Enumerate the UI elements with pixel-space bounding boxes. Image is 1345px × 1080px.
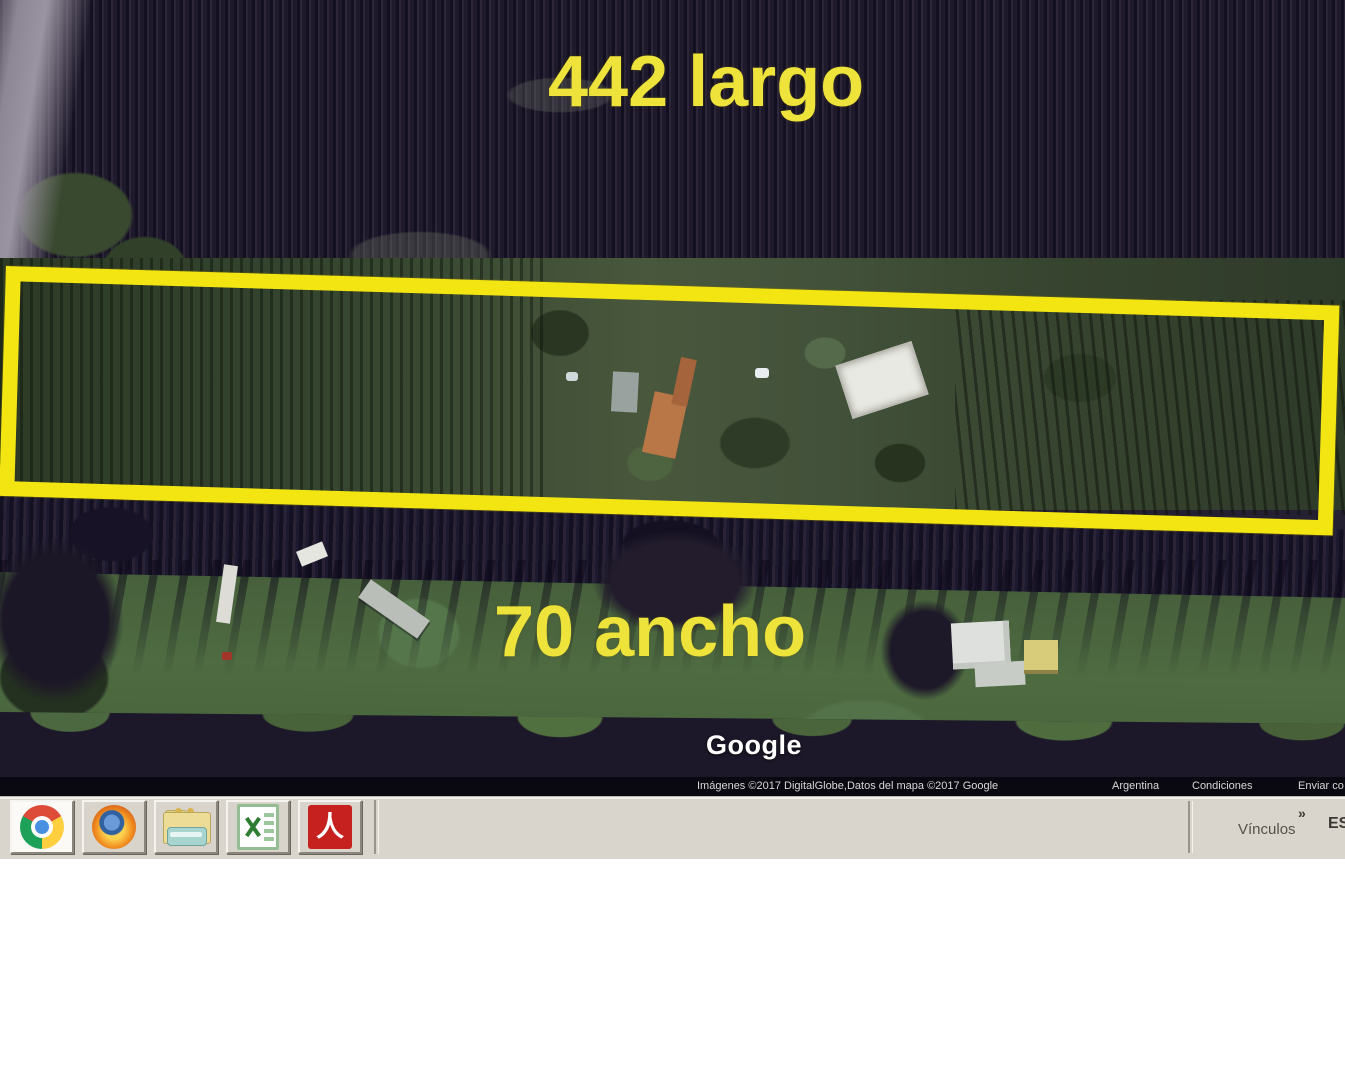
excel-icon bbox=[237, 804, 279, 850]
desktop-screenshot: 442 largo 70 ancho Google Imágenes ©2017… bbox=[0, 0, 1345, 1080]
firefox-button[interactable] bbox=[82, 800, 146, 854]
quick-launch-toolbar bbox=[10, 800, 379, 854]
acrobat-button[interactable] bbox=[298, 800, 362, 854]
chrome-icon bbox=[20, 805, 64, 849]
length-annotation: 442 largo bbox=[548, 46, 864, 118]
yellow-building bbox=[1024, 640, 1058, 674]
taskbar: Vínculos » ES bbox=[0, 796, 1345, 859]
width-annotation: 70 ancho bbox=[494, 596, 806, 668]
parcel-highlight-rectangle bbox=[0, 266, 1339, 535]
chrome-button[interactable] bbox=[10, 800, 74, 854]
toolbar-divider bbox=[374, 800, 379, 854]
excel-button[interactable] bbox=[226, 800, 290, 854]
red-object bbox=[222, 652, 232, 660]
attribution-bar: Imágenes ©2017 DigitalGlobe,Datos del ma… bbox=[0, 777, 1345, 796]
folder-vehicle-icon bbox=[163, 806, 209, 848]
chevron-overflow-icon[interactable]: » bbox=[1298, 805, 1306, 821]
house-roof bbox=[974, 661, 1025, 688]
attribution-link-condiciones[interactable]: Condiciones bbox=[1192, 780, 1253, 792]
attribution-link-argentina[interactable]: Argentina bbox=[1112, 780, 1159, 792]
google-logo[interactable]: Google bbox=[706, 730, 802, 761]
acrobat-icon bbox=[308, 805, 352, 849]
folder-vehicle-button[interactable] bbox=[154, 800, 218, 854]
firefox-icon bbox=[92, 805, 136, 849]
links-toolbar-label[interactable]: Vínculos bbox=[1238, 821, 1296, 838]
attribution-link-enviar[interactable]: Enviar co bbox=[1298, 780, 1344, 792]
language-indicator[interactable]: ES bbox=[1328, 815, 1345, 833]
tree-cluster bbox=[0, 500, 160, 740]
toolbar-divider bbox=[1188, 801, 1193, 853]
satellite-map[interactable]: 442 largo 70 ancho Google Imágenes ©2017… bbox=[0, 0, 1345, 796]
imagery-attribution: Imágenes ©2017 DigitalGlobe,Datos del ma… bbox=[697, 780, 998, 792]
